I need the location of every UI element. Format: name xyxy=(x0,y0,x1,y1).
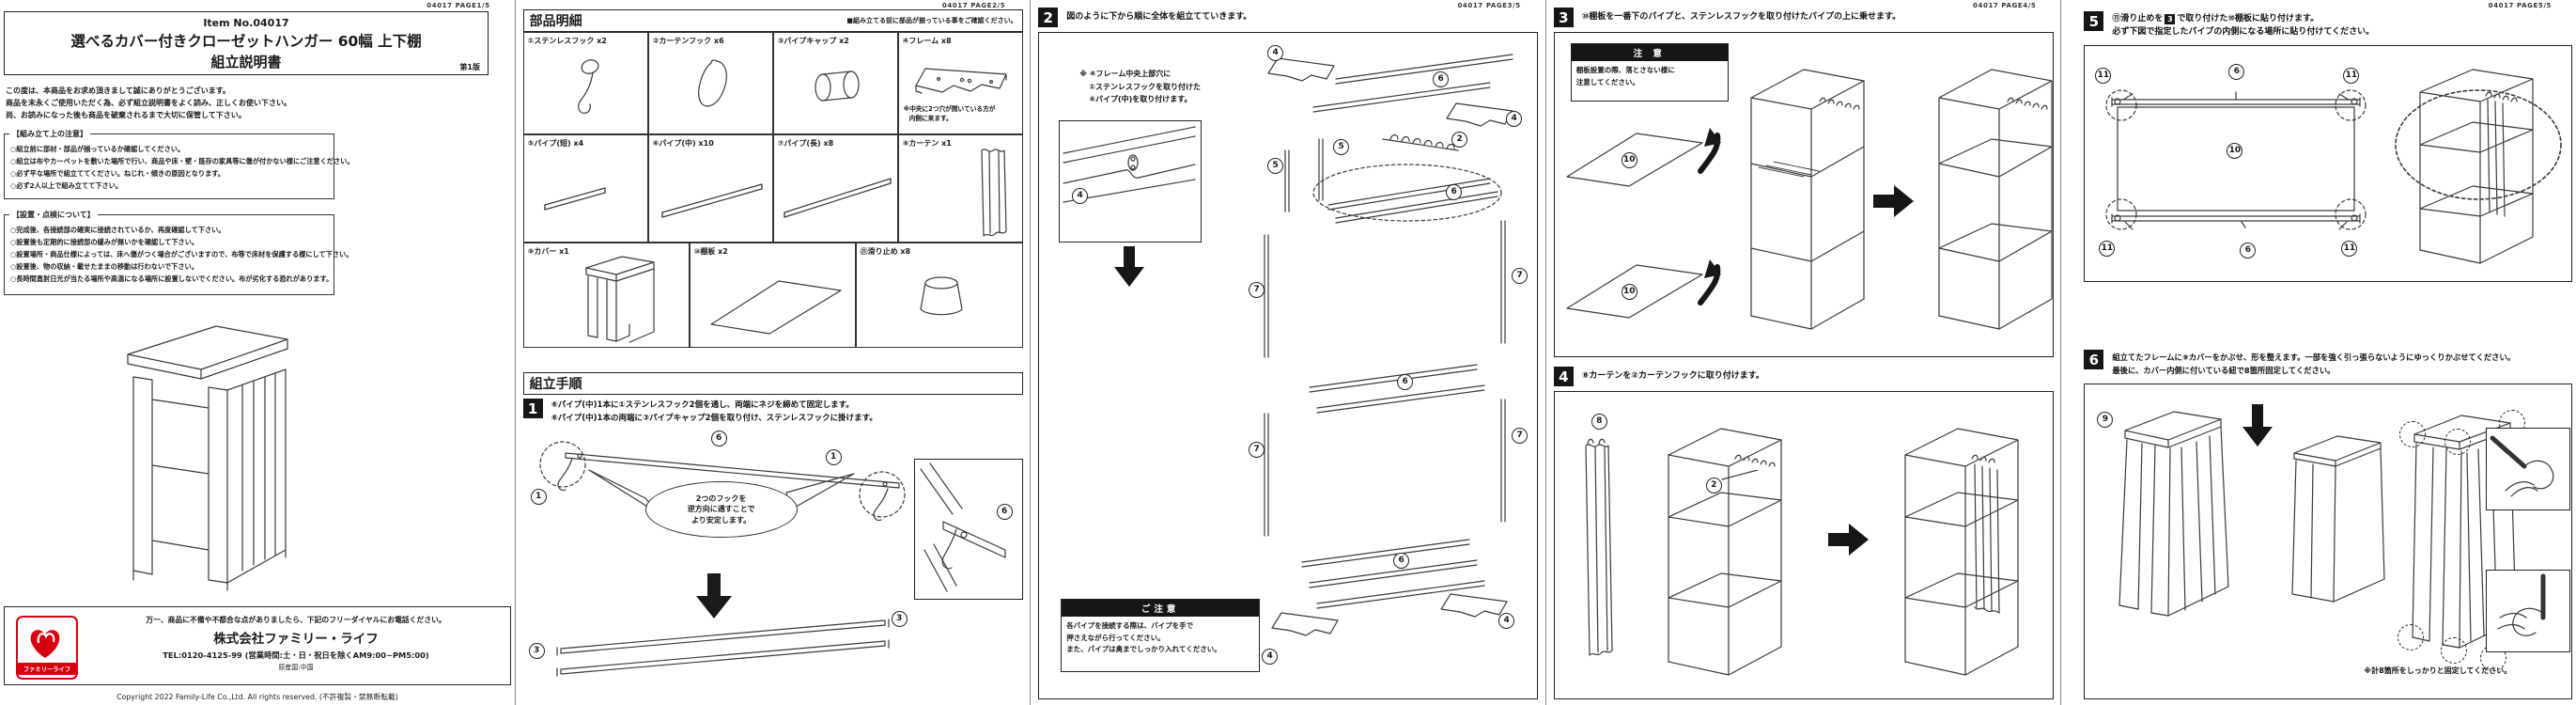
part-ref-curtain: 8 xyxy=(1591,414,1607,430)
step3-number: 3 xyxy=(1554,8,1574,27)
assembly-notes-box: 【組み立て上の注意】 ○組立前に部材・部品が揃っているか確認してください。 ○組… xyxy=(4,133,334,199)
curtain-hook-drawing xyxy=(692,54,739,129)
step2-text: 図のように下から順に全体を組立てていきます。 xyxy=(1066,11,1251,24)
part-ref-pipe: 6 xyxy=(997,504,1013,520)
down-arrow xyxy=(1113,246,1145,288)
step3-text: ⑩棚板を一番下のパイプと、ステンレスフックを取り付けたパイプの上に乗せます。 xyxy=(1582,11,1901,24)
step4-frame-before xyxy=(1648,410,1789,692)
step1-text: ⑥パイプ(中)1本に①ステンレスフック2個を通し、両端にネジを締めて固定します。… xyxy=(551,399,877,425)
part-ref-cap: 3 xyxy=(892,611,908,627)
step2-number: 2 xyxy=(1038,8,1058,27)
page-1: 04017 PAGE1/5 Item No.04017 選べるカバー付きクローゼ… xyxy=(0,0,515,705)
frame-drawing xyxy=(910,57,1014,100)
page-subtitle: 組立説明書 xyxy=(5,52,488,71)
finished-product-drawing xyxy=(111,315,299,597)
step6-number: 6 xyxy=(2084,350,2103,369)
pipe-medium-drawing xyxy=(657,167,769,224)
country-of-origin: 原産国:中国 xyxy=(89,663,503,672)
item-number: Item No.04017 xyxy=(5,17,488,29)
step3-shelf-boards xyxy=(1561,115,1721,350)
part-ref-cap: 3 xyxy=(529,643,545,659)
part-ref-hook: 1 xyxy=(826,449,842,465)
cover-drawing xyxy=(573,249,667,345)
parts-list-note: ■組み立てる前に部品が揃っている事をご確認ください。 xyxy=(846,16,1016,25)
step3-frame-before xyxy=(1730,49,1871,348)
heart-swirl-icon xyxy=(18,618,72,659)
step1-number: 1 xyxy=(523,399,543,418)
part-cell-pipe-long: ⑦パイプ(長) x8 xyxy=(773,134,898,243)
shelf-board-drawing xyxy=(704,266,845,337)
title-box: Item No.04017 選べるカバー付きクローゼットハンガー 60幅 上下棚… xyxy=(4,11,489,75)
page-number: 04017 PAGE5/5 xyxy=(2489,2,2552,9)
part-ref-shelf: 10 xyxy=(1622,152,1637,168)
part-cell-curtain-hook: ②カーテンフック x6 xyxy=(648,32,773,134)
step6-text: 組立てたフレームに⑨カバーをかぶせ、形を整えます。一部を強く引っ張らないようにゆ… xyxy=(2112,352,2515,377)
step2-note: ※ ④フレーム中央上部穴に ①ステンレスフックを取り付けた ⑥パイプ(中)を取り… xyxy=(1079,68,1201,106)
caution-title: ご注意 xyxy=(1062,600,1259,617)
step6-cover-drawing xyxy=(2106,399,2238,634)
caution-title: 注 意 xyxy=(1572,44,1728,61)
step4-frame-after xyxy=(1885,410,2035,692)
copyright-line: Copyright 2022 Family-Life Co.,Ltd. All … xyxy=(0,692,515,702)
part-ref-pipe: 6 xyxy=(711,431,727,446)
part-cell-pipe-medium: ⑥パイプ(中) x10 xyxy=(648,134,773,243)
step6-detail-inset-1 xyxy=(2486,428,2570,510)
step3-caution-box: 注 意 棚板設置の際、落とさない様に 注意してください。 xyxy=(1571,43,1729,102)
pipe-short-drawing xyxy=(537,173,636,215)
page-5: 04017 PAGE5/5 5 ⑪滑り止めを3で取り付けた⑩棚板に貼り付けます。… xyxy=(2060,0,2576,705)
assembly-steps-title: 組立手順 xyxy=(530,374,582,393)
family-life-logo: ファミリーライフ xyxy=(16,616,78,680)
support-tel: TEL:0120-4125-99 (営業時間:土・日・祝日を除くAM9:00~P… xyxy=(89,650,503,661)
intro-paragraph: この度は、本商品をお求め頂きまして誠にありがとうございます。 商品を末永くご使用… xyxy=(6,85,291,121)
page-number: 04017 PAGE1/5 xyxy=(427,2,489,9)
step6-covered-unit xyxy=(2279,425,2392,613)
step2-detail-drawing xyxy=(1060,121,1199,240)
slip-stopper-drawing xyxy=(911,270,971,324)
logo-text: ファミリーライフ xyxy=(18,663,76,675)
step2-exploded-diagram xyxy=(1223,38,1533,658)
pipe-cap-drawing xyxy=(810,66,870,109)
step6-detail-inset-2 xyxy=(2486,570,2570,652)
curtain-drawing xyxy=(972,143,1016,241)
instruction-sheet: 04017 PAGE1/5 Item No.04017 選べるカバー付きクローゼ… xyxy=(0,0,2576,705)
pipe-long-drawing xyxy=(780,164,896,224)
part-ref-curtain-hook: 2 xyxy=(1706,478,1722,493)
tie-detail-drawing xyxy=(2487,429,2568,508)
right-arrow xyxy=(1828,523,1870,556)
tie-detail-drawing xyxy=(2487,571,2568,650)
parts-grid: ①ステンレスフック x2 ②カーテンフック x6 ③パイプキャップ x2 xyxy=(523,32,1023,348)
page-4: 04017 PAGE4/5 3 ⑩棚板を一番下のパイプと、ステンレスフックを取り… xyxy=(1545,0,2061,705)
part-cell-pipe-cap: ③パイプキャップ x2 xyxy=(773,32,898,134)
part-cell-curtain: ⑧カーテン x1 xyxy=(898,134,1023,243)
part-ref-shelf: 10 xyxy=(1622,284,1637,300)
step4-number: 4 xyxy=(1554,367,1574,386)
step4-text: ⑧カーテンを②カーテンフックに取り付けます。 xyxy=(1582,370,1764,384)
right-arrow xyxy=(1873,184,1915,218)
part-ref-hook: 1 xyxy=(531,489,547,505)
page-number: 04017 PAGE2/5 xyxy=(942,2,1005,9)
step5-text: ⑪滑り止めを3で取り付けた⑩棚板に貼り付けます。 必ず下図で指定したパイプの内側… xyxy=(2112,13,2374,39)
step3-frame-after xyxy=(1918,49,2059,348)
page-2: 04017 PAGE2/5 部品明細 ■組み立てる前に部品が揃っている事をご確認… xyxy=(515,0,1031,705)
edition-label: 第1版 xyxy=(459,62,480,72)
page-title: 選べるカバー付きクローゼットハンガー 60幅 上下棚 xyxy=(5,30,488,51)
step5-topview-diagram xyxy=(2104,86,2367,237)
step1-detail-inset xyxy=(914,459,1023,600)
down-arrow xyxy=(2242,404,2273,447)
step5-number: 5 xyxy=(2084,11,2103,31)
part-cell-shelf-board: ⑩棚板 x2 xyxy=(690,243,856,348)
support-lead: 万一、商品に不備や不都合な点がありましたら、下記のフリーダイヤルにお電話ください… xyxy=(89,615,503,625)
page-number: 04017 PAGE3/5 xyxy=(1457,2,1520,9)
part-cell-slip-stopper: ⑪滑り止め x8 xyxy=(856,243,1023,348)
stainless-hook-drawing xyxy=(562,54,618,129)
parts-list-title: 部品明細 xyxy=(530,11,582,30)
step1-detail-drawing xyxy=(915,460,1020,597)
step4-curtain xyxy=(1573,434,1633,669)
part-cell-pipe-short: ⑤パイプ(短) x4 xyxy=(523,134,648,243)
step-ref-3: 3 xyxy=(2165,14,2175,24)
part-cell-cover: ⑨カバー x1 xyxy=(523,243,690,348)
page-number: 04017 PAGE4/5 xyxy=(1973,2,2036,9)
assembly-notes-title: 【組み立て上の注意】 xyxy=(9,129,90,139)
part-cell-frame: ④フレーム x8 ※中央に2つ穴が開いている方が 内側に来ます。 xyxy=(898,32,1023,134)
step1-tip-bubble: 2つのフックを 逆方向に通すことで より安定します。 xyxy=(645,481,798,538)
support-box: ファミリーライフ 万一、商品に不備や不都合な点がありましたら、下記のフリーダイヤ… xyxy=(4,606,511,685)
page-3: 04017 PAGE3/5 2 図のように下から順に全体を組立てていきます。 ※… xyxy=(1030,0,1545,705)
part-cell-stainless-hook: ①ステンレスフック x2 xyxy=(523,32,648,134)
parts-list-header: 部品明細 ■組み立てる前に部品が揃っている事をご確認ください。 xyxy=(523,9,1023,32)
step5-frame-drawing xyxy=(2392,53,2570,278)
company-name: 株式会社ファミリー・ライフ xyxy=(89,628,503,647)
assembly-steps-header: 組立手順 xyxy=(523,372,1023,395)
placement-notes-box: 【設置・点検について】 ○完成後、各接続部の確実に接続されているか、再度確認して… xyxy=(4,214,334,295)
placement-notes-title: 【設置・点検について】 xyxy=(9,210,98,220)
step2-caution-box: ご注意 各パイプを接続する際は、パイプを手で 押さえながら行ってください。 また… xyxy=(1061,599,1260,672)
step2-detail-inset xyxy=(1059,120,1202,243)
